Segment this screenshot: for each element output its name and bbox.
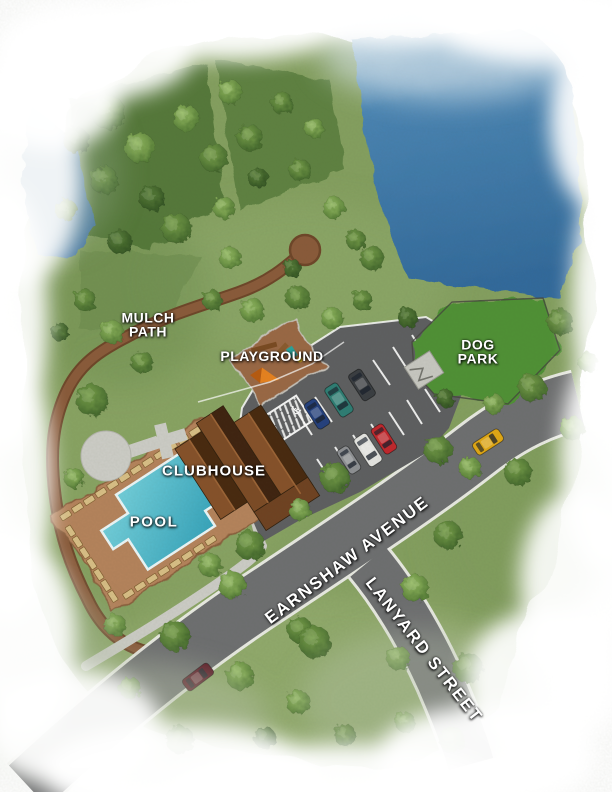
mulch-path-label: MULCH PATH xyxy=(121,311,174,340)
pool-label: POOL xyxy=(130,514,179,529)
clubhouse-label: CLUBHOUSE xyxy=(162,463,266,478)
map-illustration: ♿ ♿ xyxy=(0,0,612,792)
site-plan-map: ♿ ♿ xyxy=(0,0,612,792)
playground-label: PLAYGROUND xyxy=(220,349,323,363)
dog-park-label: DOG PARK xyxy=(458,338,499,367)
